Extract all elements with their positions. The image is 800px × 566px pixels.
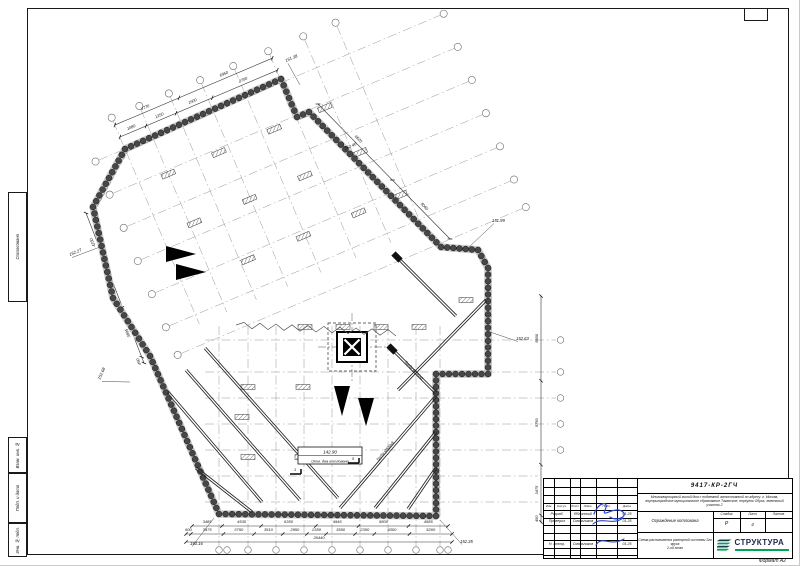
pit-bottom-elevation: 142.90 (323, 450, 337, 455)
pile (485, 364, 491, 370)
pile (321, 512, 327, 518)
title-block-line (713, 518, 792, 519)
tb-sheet-label: Лист (740, 511, 765, 518)
pile (397, 202, 403, 208)
pile (361, 512, 367, 518)
pile (433, 474, 439, 480)
pile (147, 353, 153, 359)
title-block-line (740, 511, 741, 532)
axis-bubble (265, 48, 272, 55)
pile (94, 224, 100, 230)
grid-line (202, 84, 288, 287)
pile (187, 444, 193, 450)
grid-line (127, 82, 468, 227)
pile (424, 230, 430, 236)
excavation-plan: 3485453563504945580045856003975375035102… (28, 9, 790, 556)
grid-line (170, 181, 511, 326)
pile (485, 345, 491, 351)
pile (485, 351, 491, 357)
tb-object-name: Ограждение котлована (637, 511, 713, 532)
pile (208, 493, 214, 499)
section-mark-label: 1 (294, 467, 296, 472)
pile (380, 513, 386, 519)
waler-block (412, 325, 426, 330)
pile (106, 175, 112, 181)
pile (150, 359, 156, 365)
tb-col-izm: Изм. (544, 503, 554, 510)
axis-bubble (332, 19, 339, 26)
pile (400, 513, 406, 519)
dimension-text: 3550 (336, 527, 346, 532)
dimension-text: 5060 (420, 201, 430, 211)
pile (114, 301, 120, 307)
tb-role-nkontr: Н. контр. (544, 540, 570, 548)
pile (394, 513, 400, 519)
axis-bubble (557, 369, 564, 376)
pile (283, 89, 289, 95)
pile (96, 192, 102, 198)
pile (433, 371, 439, 377)
pile (485, 318, 491, 324)
pile (272, 79, 278, 85)
signature (594, 504, 624, 519)
pile (109, 289, 115, 295)
pile (450, 245, 456, 251)
tb-project-name: Многоквартирный жилой дом с подземной ав… (639, 493, 790, 511)
title-block-line (580, 479, 581, 558)
pile (179, 426, 185, 432)
axis-bubble (108, 114, 115, 121)
title-block-line (554, 479, 555, 558)
pile (242, 92, 248, 98)
pile (155, 371, 161, 377)
pile (469, 247, 475, 253)
axis-bubble (245, 547, 252, 554)
pile (125, 318, 131, 324)
strut (167, 393, 261, 503)
axis-bubble (437, 547, 444, 554)
pile (433, 461, 439, 467)
pile (485, 265, 491, 271)
pile (91, 211, 97, 217)
tb-stage-value: Р (713, 518, 740, 532)
pile (189, 450, 195, 456)
pile (200, 111, 206, 117)
pile (482, 259, 488, 265)
pile (248, 89, 254, 95)
pile (438, 244, 444, 250)
structura-logo-icon (717, 539, 732, 552)
axis-bubble (522, 204, 529, 211)
pile (433, 403, 439, 409)
tb-role-razrab: Разраб. (544, 510, 570, 518)
strut-label: Труба Ø530х8 (376, 440, 396, 462)
pile (216, 511, 222, 517)
pile (136, 336, 142, 342)
pile (282, 512, 288, 518)
structura-logo-text: СТРУКТУРА (735, 539, 785, 548)
pile (459, 371, 465, 377)
tb-stage-label: Стадия (713, 511, 740, 518)
pile (420, 225, 426, 231)
grid-line (305, 40, 391, 243)
pile (99, 243, 105, 249)
axis-bubble (300, 33, 307, 40)
axis-bubble (197, 77, 204, 84)
pile (213, 505, 219, 511)
axis-bubble (496, 143, 503, 150)
pile (379, 183, 385, 189)
dimension-text: 4300 (387, 527, 397, 532)
dimension-text: 600 (185, 527, 192, 532)
waler-block (297, 171, 312, 181)
pile (354, 512, 360, 518)
pile (370, 174, 376, 180)
pile (254, 87, 260, 93)
axis-bubble (92, 158, 99, 165)
pile (420, 513, 426, 519)
axis-bubble (482, 110, 489, 117)
pile (206, 108, 212, 114)
pile (288, 512, 294, 518)
tb-role-proveril: Проверил (544, 518, 570, 526)
pile (96, 230, 102, 236)
tb-sheets-label: Листов (765, 511, 792, 518)
pile (301, 512, 307, 518)
strut (374, 431, 435, 507)
pile (236, 511, 242, 517)
pile (143, 347, 149, 353)
waler-block (393, 190, 408, 200)
dimension-text: 2950 (289, 527, 300, 532)
pile (134, 141, 140, 147)
pile (320, 123, 326, 129)
dimension-text: 4535 (237, 519, 247, 524)
elevation-label: 151.38 (284, 53, 298, 63)
pile (411, 216, 417, 222)
pile (341, 512, 347, 518)
pile (356, 160, 362, 166)
pile (176, 420, 182, 426)
pile (433, 494, 439, 500)
dimension-text: 450 (534, 515, 539, 522)
pile (203, 481, 209, 487)
pile (223, 511, 229, 517)
pile (361, 165, 367, 171)
axis-bubble (557, 337, 564, 344)
pile (433, 448, 439, 454)
pile (103, 181, 109, 187)
axis-bubble (557, 395, 564, 402)
pile (101, 256, 107, 262)
grid-line (113, 48, 454, 193)
pile (242, 511, 248, 517)
pile (249, 511, 255, 517)
title-block-line (765, 511, 766, 532)
waler-block (161, 169, 176, 179)
dimension-layer: 3485453563504945580045856003975375035102… (84, 56, 543, 544)
pile (170, 124, 176, 130)
pile (218, 103, 224, 109)
pile (112, 163, 118, 169)
pile (485, 305, 491, 311)
pile (324, 128, 330, 134)
leader-line (440, 520, 462, 545)
pile (107, 282, 113, 288)
pile (334, 512, 340, 518)
dimension-text: 5750 (534, 417, 539, 427)
dimension-text: 2350 (359, 527, 370, 532)
dimension-text: 5800 (379, 519, 389, 524)
waler-block (296, 385, 310, 390)
strut (399, 257, 457, 315)
waler-block (267, 124, 282, 134)
pile (433, 239, 439, 245)
pile (429, 235, 435, 241)
elevation-label: 151.99 (492, 218, 505, 223)
waler-block (242, 194, 257, 204)
pile (176, 122, 182, 128)
pile (485, 371, 491, 377)
axis-bubble (224, 547, 231, 554)
pile (433, 513, 439, 519)
waler-block (351, 208, 366, 218)
signatures (590, 500, 640, 555)
leader-line (102, 382, 130, 383)
waler-block (241, 255, 256, 265)
axis-bubble (106, 191, 113, 198)
pile (93, 217, 99, 223)
side-stamp-label: Инв. № подл. (15, 527, 20, 553)
leader-line (288, 64, 300, 86)
pile (286, 95, 292, 101)
pile (387, 513, 393, 519)
pile (306, 109, 312, 115)
dimension-text: 5800 (534, 333, 539, 343)
pile (262, 511, 268, 517)
pile (119, 152, 125, 158)
axis-bubble (557, 421, 564, 428)
pile (415, 221, 421, 227)
tb-drawing-title-line2: 2-ой этап (667, 547, 683, 551)
pile (100, 187, 106, 193)
dimension-text: 1250 (154, 111, 165, 119)
pile (236, 95, 242, 101)
pile (100, 250, 106, 256)
axis-bubble (174, 351, 181, 358)
pile (475, 247, 481, 253)
pile (182, 119, 188, 125)
pile (485, 272, 491, 278)
dimension-text: 2350 (311, 527, 322, 532)
pile (182, 432, 188, 438)
pile (472, 371, 478, 377)
pile (328, 512, 334, 518)
strut (407, 467, 435, 508)
axis-bubble (165, 90, 172, 97)
title-block-line (570, 479, 571, 558)
axis-bubble (216, 547, 223, 554)
pile (230, 98, 236, 104)
stair-mark (358, 398, 374, 426)
title-block-line (544, 487, 637, 488)
axis-bubble (134, 257, 141, 264)
pile (289, 101, 295, 107)
axis-bubble (230, 62, 237, 69)
pile (205, 487, 211, 493)
pile (93, 198, 99, 204)
axis-bubble (162, 324, 169, 331)
pile (383, 188, 389, 194)
dimension-line (86, 213, 144, 363)
tb-sheets-value (765, 518, 792, 532)
pile (485, 285, 491, 291)
side-stamp-label: Подп. и дата (15, 485, 20, 511)
pile (308, 512, 314, 518)
pile (90, 204, 96, 210)
pile (406, 211, 412, 217)
leader-line (468, 224, 494, 249)
pile (365, 170, 371, 176)
pile (315, 118, 321, 124)
pile (188, 116, 194, 122)
dimension-line (318, 104, 450, 239)
stair-mark (166, 246, 196, 262)
strut (206, 347, 339, 497)
strut-bearing (391, 251, 402, 262)
elevation-label: 150.16 (190, 541, 203, 546)
elevation-label: 152.35 (460, 539, 473, 544)
pit-bottom-caption: Отм. дна котлована (311, 460, 349, 464)
pile (433, 377, 439, 383)
pile (211, 499, 217, 505)
side-stamp-inv: Инв. № подл. (8, 523, 27, 557)
pile (485, 325, 491, 331)
pile (140, 138, 146, 144)
grid-layer (92, 10, 564, 553)
side-stamp-label: Взам. инв. № (15, 442, 20, 468)
pile (224, 100, 230, 106)
waler-beam-line (96, 81, 491, 518)
grid-line (235, 70, 321, 273)
pile (110, 295, 116, 301)
dimension-text: 4250 (88, 237, 96, 248)
pile (97, 237, 103, 243)
pile (117, 307, 123, 313)
elevation-label: 152.68 (96, 366, 106, 380)
pile (348, 512, 354, 518)
waler-block (459, 298, 473, 303)
title-block-line (637, 532, 792, 533)
pile (164, 127, 170, 133)
pile (433, 410, 439, 416)
pile (457, 246, 463, 252)
axis-bubble (357, 547, 364, 554)
pile (281, 82, 287, 88)
axis-bubble (273, 547, 280, 554)
pile (433, 416, 439, 422)
pile (106, 276, 112, 282)
strut (397, 259, 455, 317)
title-block: Изм. Кол.уч. Лист №док. Подп. Дата Разра… (543, 478, 793, 559)
pile (426, 513, 432, 519)
tb-col-koluch: Кол.уч. (554, 503, 570, 510)
pile (174, 414, 180, 420)
pile (453, 371, 459, 377)
pile (413, 513, 419, 519)
grid-line (156, 148, 497, 293)
pile (433, 442, 439, 448)
pile (433, 455, 439, 461)
pile (255, 511, 261, 517)
pile (269, 511, 275, 517)
pile (444, 245, 450, 251)
strut-label: Труба Ø530х8 (404, 360, 425, 381)
pile (152, 133, 158, 139)
pile (315, 512, 321, 518)
axis-bubble (468, 76, 475, 83)
pile (163, 389, 169, 395)
waler-block (241, 455, 255, 460)
pile (433, 481, 439, 487)
stair-mark (334, 386, 350, 416)
pile (446, 371, 452, 377)
waler-block (212, 148, 227, 158)
axis-bubble (385, 547, 392, 554)
pile (194, 114, 200, 120)
strut (195, 469, 251, 513)
pile (116, 158, 122, 164)
title-block-line (637, 511, 792, 512)
dimension-text: 3750 (234, 527, 244, 532)
pile (374, 512, 380, 518)
pile (311, 114, 317, 120)
pile (184, 438, 190, 444)
tb-col-list: Лист (570, 503, 580, 510)
dimension-text: 3485 (203, 519, 213, 524)
pile (479, 371, 485, 377)
pile (478, 253, 484, 259)
elevation-label: 152.63 (516, 336, 529, 341)
pile (433, 487, 439, 493)
pile (485, 358, 491, 364)
axis-bubble (413, 547, 420, 554)
pile (294, 114, 300, 120)
pile (128, 143, 134, 149)
pile (171, 408, 177, 414)
pile (121, 312, 127, 318)
pile (260, 84, 266, 90)
pile (158, 377, 164, 383)
pile (466, 371, 472, 377)
title-block-line (544, 495, 637, 496)
tb-logo-cell: СТРУКТУРА (713, 532, 792, 558)
dimension-text: 26440 (312, 535, 325, 540)
dimension-text: 3475 (534, 485, 539, 495)
pile (295, 512, 301, 518)
side-stamp-label: Согласовано (15, 234, 20, 260)
pile (140, 341, 146, 347)
pile (485, 311, 491, 317)
dimension-text: 5200 (426, 527, 436, 532)
dimension-text: 1500 (187, 97, 198, 105)
pile (485, 278, 491, 284)
pile (440, 371, 446, 377)
axis-bubble (120, 224, 127, 231)
pile (485, 338, 491, 344)
pile (229, 511, 235, 517)
pile (160, 383, 166, 389)
